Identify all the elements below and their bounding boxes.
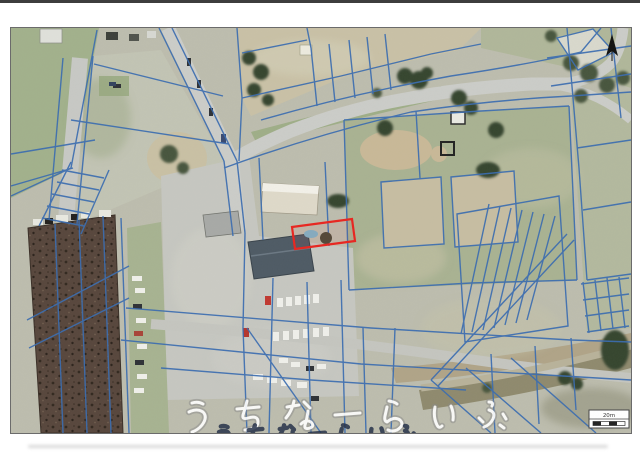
scan-edge-bar <box>0 0 640 3</box>
photo-grain-overlay <box>11 28 631 433</box>
scan-shadow <box>28 445 608 448</box>
map-canvas: 20m <box>11 28 631 433</box>
aerial-map-image: 20m <box>10 27 632 434</box>
